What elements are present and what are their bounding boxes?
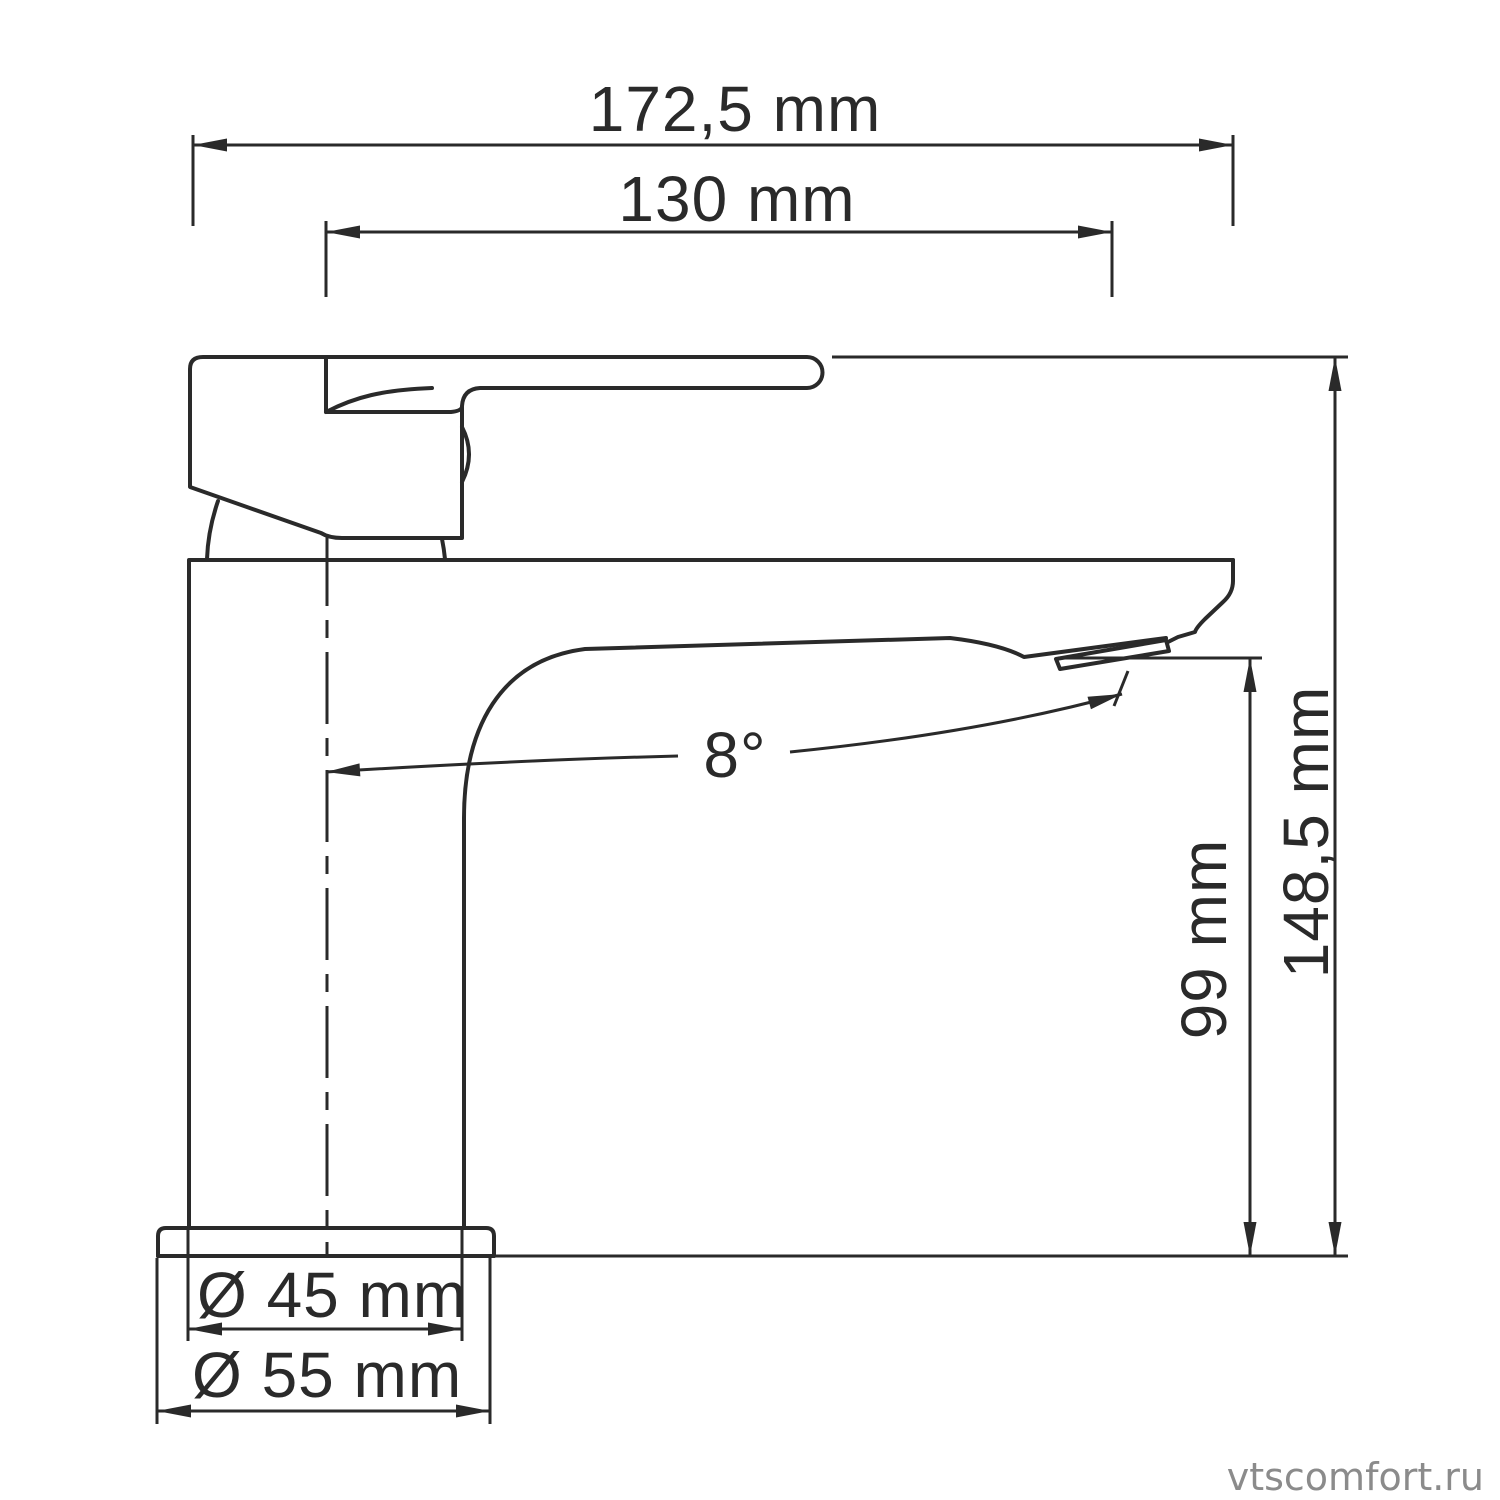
label-body-diameter: Ø 45 mm	[197, 1259, 467, 1331]
label-spout-angle: 8°	[703, 719, 766, 791]
body-base-arc-left	[207, 501, 218, 559]
label-base-diameter: Ø 55 mm	[192, 1339, 462, 1411]
technical-drawing-page: 172,5 mm 130 mm 8° 99 mm 148,5 mm Ø 45 m…	[0, 0, 1500, 1500]
column-right-edge-spout-underside	[464, 638, 1166, 1228]
label-spout-reach: 130 mm	[618, 163, 855, 235]
body-base-arc-right	[442, 539, 445, 559]
spout-front-face	[1168, 560, 1233, 642]
angle-leader-right	[790, 694, 1122, 752]
faucet-outline-group	[158, 357, 1233, 1258]
angle-leader-tick	[1114, 671, 1128, 706]
label-overall-height: 148,5 mm	[1270, 686, 1342, 979]
label-overall-width: 172,5 mm	[589, 73, 882, 145]
faucet-drawing-canvas: 172,5 mm 130 mm 8° 99 mm 148,5 mm Ø 45 m…	[0, 0, 1500, 1500]
dimension-labels: 172,5 mm 130 mm 8° 99 mm 148,5 mm Ø 45 m…	[192, 73, 1342, 1411]
label-spout-height: 99 mm	[1168, 839, 1240, 1040]
angle-leader-left	[326, 756, 678, 772]
watermark-text: vtscomfort.ru	[1227, 1455, 1484, 1499]
faucet-handle-body	[190, 357, 823, 538]
